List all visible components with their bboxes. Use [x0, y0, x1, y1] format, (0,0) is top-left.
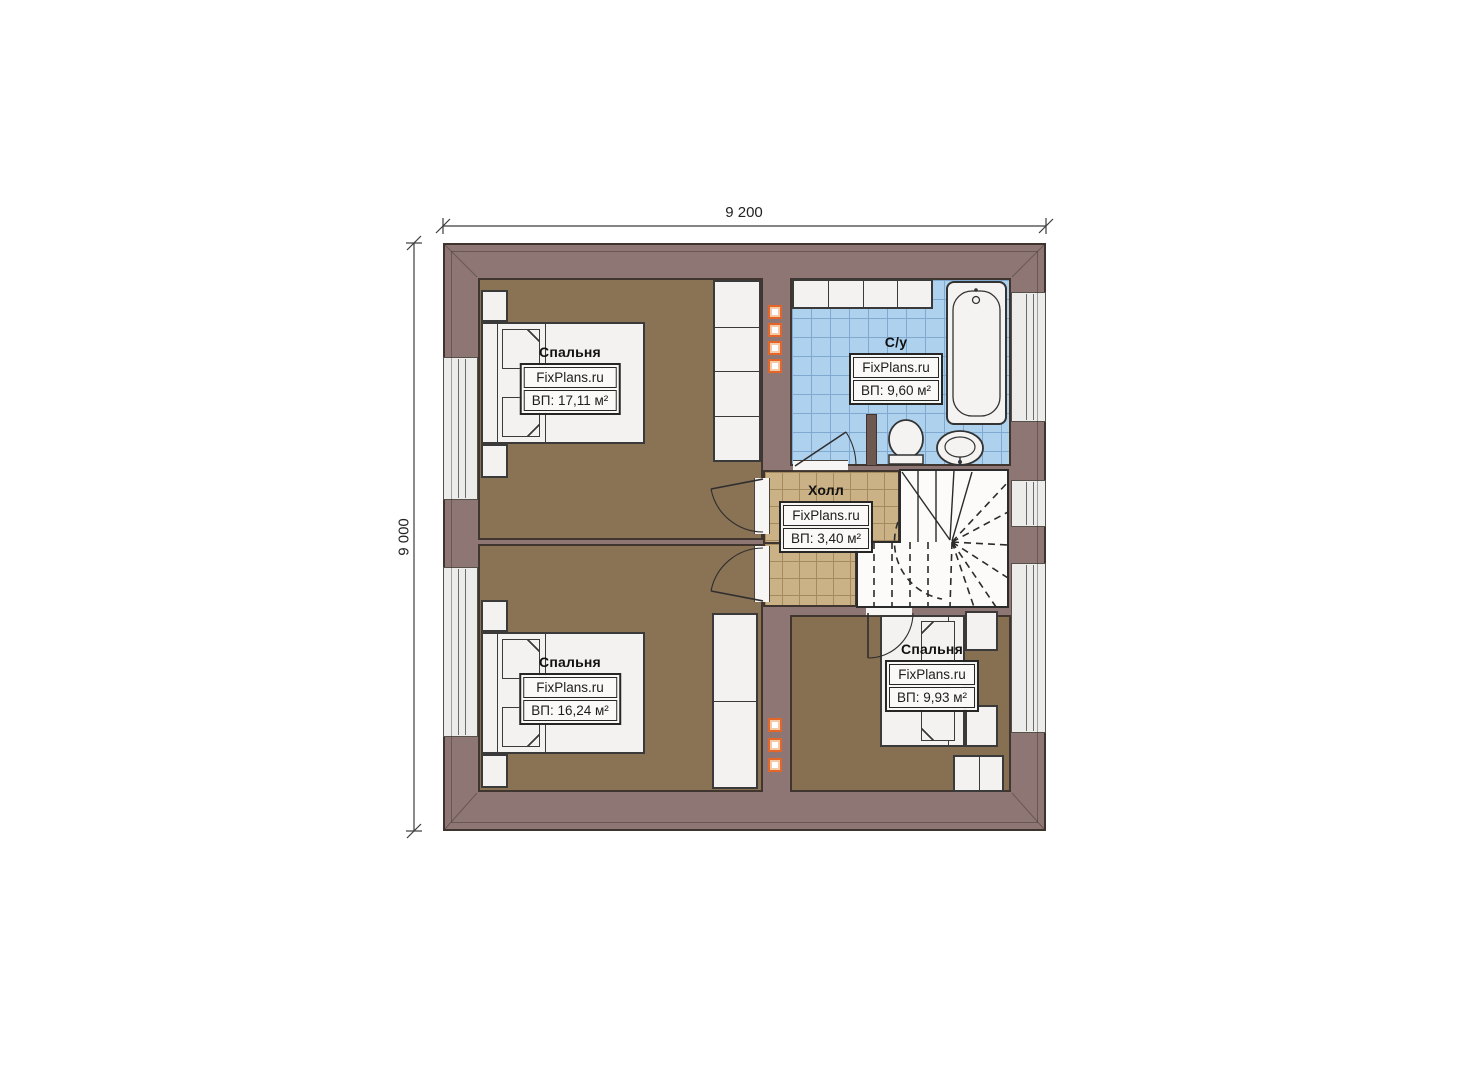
headboard-line: [497, 324, 498, 442]
watermark-label: FixPlans.ru: [853, 357, 939, 378]
area-label: ВП: 16,24 м²: [523, 700, 617, 721]
window-glass: [458, 359, 466, 498]
pillow-fold: [527, 329, 540, 342]
room-name: Спальня: [519, 654, 621, 670]
window-right-1: [1011, 292, 1046, 422]
door-opening-bedroom-top-left: [754, 478, 770, 534]
pillow-fold: [527, 734, 540, 747]
bathroom-partition-stub: [866, 414, 877, 466]
pillow-fold: [527, 424, 540, 437]
window-right-3: [1011, 563, 1046, 733]
label-box: FixPlans.ru ВП: 9,60 м²: [849, 353, 943, 405]
vent-block: [768, 341, 782, 355]
vent-block: [768, 738, 782, 752]
room-name: Спальня: [885, 641, 979, 657]
room-name: Спальня: [520, 344, 621, 360]
room-label-bedroom-top-left: Спальня FixPlans.ru ВП: 17,11 м²: [520, 344, 621, 415]
area-label: ВП: 9,60 м²: [853, 380, 939, 401]
room-label-hall: Холл FixPlans.ru ВП: 3,40 м²: [779, 482, 873, 553]
nightstand: [481, 754, 508, 788]
cabinet-bottom-right: [953, 755, 1004, 792]
label-box: FixPlans.ru ВП: 16,24 м²: [519, 673, 621, 725]
window-left-2: [443, 567, 478, 737]
cabinet-divider: [828, 281, 829, 307]
dimension-top-label: 9 200: [725, 204, 763, 221]
window-glass: [458, 569, 466, 735]
dimension-left-label: 9 000: [396, 518, 413, 556]
window-left-1: [443, 357, 478, 500]
nightstand: [481, 444, 508, 478]
pillow-fold: [921, 728, 934, 741]
shelf-line: [715, 327, 759, 328]
room-name: С/у: [849, 334, 943, 350]
cabinet-divider: [979, 757, 980, 790]
wardrobe-bottom-left: [712, 613, 758, 789]
watermark-label: FixPlans.ru: [523, 677, 617, 698]
shelf-line: [714, 701, 756, 702]
area-label: ВП: 9,93 м²: [889, 687, 975, 708]
room-label-bathroom: С/у FixPlans.ru ВП: 9,60 м²: [849, 334, 943, 405]
window-glass: [1026, 482, 1034, 525]
door-opening-bedroom-bottom-left: [754, 546, 770, 602]
window-glass: [1026, 294, 1034, 420]
cabinet-divider: [897, 281, 898, 307]
label-box: FixPlans.ru ВП: 17,11 м²: [520, 363, 621, 415]
door-opening-bathroom: [793, 460, 848, 471]
vent-block: [768, 718, 782, 732]
label-box: FixPlans.ru ВП: 9,93 м²: [885, 660, 979, 712]
floor-plan-canvas: 9 200 9 000: [0, 0, 1473, 1080]
shelf-line: [715, 416, 759, 417]
bathroom-cabinet-row: [792, 279, 933, 309]
pillow-fold: [527, 639, 540, 652]
vent-block: [768, 758, 782, 772]
window-glass: [1026, 565, 1034, 731]
wardrobe-top-left: [713, 280, 761, 462]
vent-block: [768, 359, 782, 373]
room-label-bedroom-bottom-left: Спальня FixPlans.ru ВП: 16,24 м²: [519, 654, 621, 725]
watermark-label: FixPlans.ru: [524, 367, 617, 388]
watermark-label: FixPlans.ru: [889, 664, 975, 685]
watermark-label: FixPlans.ru: [783, 505, 869, 526]
room-label-bedroom-bottom-right: Спальня FixPlans.ru ВП: 9,93 м²: [885, 641, 979, 712]
room-name: Холл: [779, 482, 873, 498]
pillow-fold: [921, 621, 934, 634]
area-label: ВП: 17,11 м²: [524, 390, 617, 411]
nightstand: [481, 290, 508, 322]
shelf-line: [715, 371, 759, 372]
nightstand: [481, 600, 508, 632]
vent-block: [768, 323, 782, 337]
area-label: ВП: 3,40 м²: [783, 528, 869, 549]
cabinet-divider: [863, 281, 864, 307]
vent-block: [768, 305, 782, 319]
label-box: FixPlans.ru ВП: 3,40 м²: [779, 501, 873, 553]
window-right-2: [1011, 480, 1046, 527]
headboard-line: [497, 634, 498, 752]
